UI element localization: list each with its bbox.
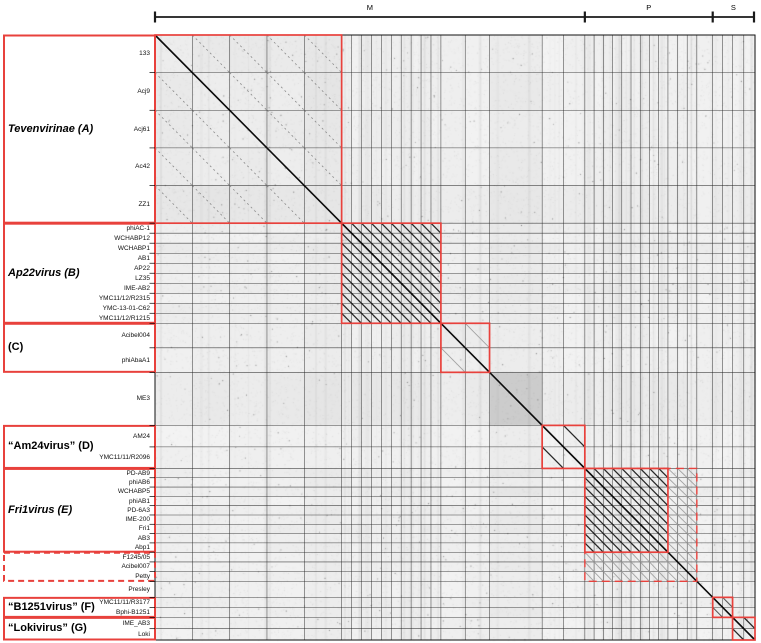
- label-area-boxes: [4, 36, 155, 640]
- main-diagonal: [155, 35, 755, 640]
- label-box-group-2: [4, 324, 155, 372]
- label-box-group-1: [4, 224, 155, 323]
- label-box-group-5: [4, 469, 155, 552]
- label-box-group-4: [4, 426, 155, 468]
- axis-segment-label-2: S: [731, 3, 736, 12]
- dotplot-figure: MPS 133Acj9Acj61Ac42ZZ1Tevenvirinae (A)p…: [0, 0, 761, 643]
- top-axis: MPS: [155, 3, 754, 23]
- label-box-group-8: [4, 598, 155, 617]
- axis-segment-label-1: P: [646, 3, 651, 12]
- dotplot-overlay: MPS: [0, 0, 761, 643]
- axis-segment-label-0: M: [367, 3, 373, 12]
- label-box-group-6: [4, 553, 155, 581]
- label-box-group-9: [4, 618, 155, 640]
- label-box-group-0: [4, 36, 155, 223]
